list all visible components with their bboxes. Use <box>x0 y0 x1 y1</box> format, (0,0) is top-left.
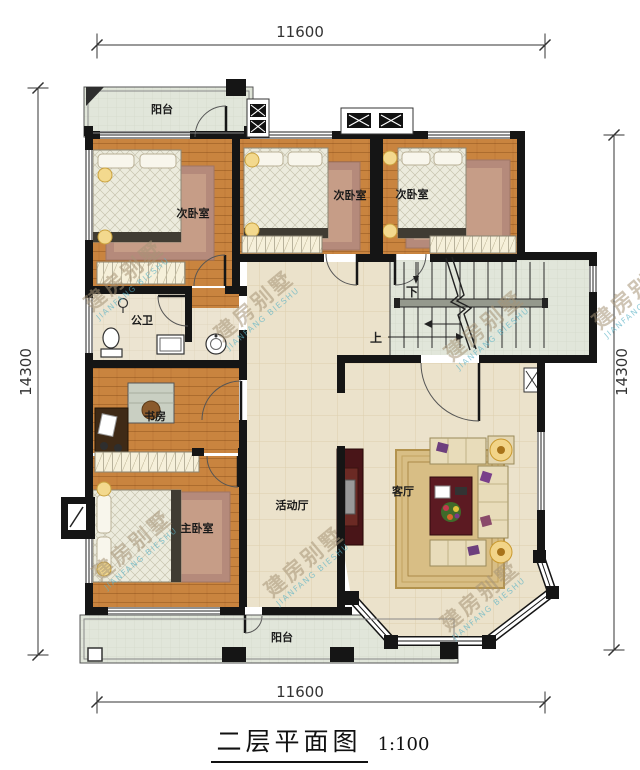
wall <box>239 286 247 296</box>
nightstand-lamp-icon <box>98 230 112 244</box>
wall <box>239 456 247 607</box>
nightstand-lamp-icon <box>97 482 111 496</box>
wall <box>430 254 517 262</box>
nightstand-lamp-icon <box>98 168 112 182</box>
label-living-room: 客厅 <box>391 484 414 498</box>
balcony-post <box>330 647 354 662</box>
label-bedroom-middle: 次卧室 <box>334 188 367 202</box>
nightstand-lamp-icon <box>245 223 259 237</box>
wall <box>357 254 370 262</box>
drawing-title-block: 二层平面图1:100 <box>0 722 640 763</box>
dimension-left: 14300 <box>17 83 48 660</box>
wall <box>85 360 247 368</box>
dimension-left-value: 14300 <box>17 348 35 396</box>
balcony-corner-post <box>88 648 102 661</box>
drawing-scale: 1:100 <box>378 734 430 755</box>
window <box>428 131 510 139</box>
window <box>108 607 220 615</box>
balcony-post <box>84 126 93 136</box>
balcony-post <box>226 79 246 96</box>
window <box>589 266 597 292</box>
dimension-right-value: 14300 <box>613 348 631 396</box>
floorplan-drawing: 下 上 <box>0 0 640 770</box>
dimension-bottom-value: 11600 <box>276 683 324 701</box>
wall <box>383 254 395 262</box>
stair-up-label: 上 <box>370 330 382 345</box>
label-bedroom-left: 次卧室 <box>177 206 210 220</box>
bay-post <box>482 635 496 649</box>
wall <box>370 131 383 262</box>
wardrobe <box>95 452 199 472</box>
wall <box>240 254 324 262</box>
bed <box>93 150 181 242</box>
wall <box>238 448 247 456</box>
wall <box>185 294 192 342</box>
balcony-post <box>440 642 458 659</box>
ac-unit-icon <box>247 99 269 137</box>
drawing-title: 二层平面图 <box>211 722 368 763</box>
washer-icon <box>157 335 184 354</box>
bay-post <box>546 586 559 599</box>
window <box>100 131 190 139</box>
wall <box>192 448 204 456</box>
label-balcony-bottom: 阳台 <box>271 630 293 644</box>
speaker-icon <box>114 444 122 452</box>
wall <box>337 355 421 363</box>
label-bedroom-right: 次卧室 <box>396 187 429 201</box>
dimension-right: 14300 <box>604 130 631 655</box>
stair-down-label: 下 <box>406 285 418 299</box>
window <box>85 150 93 240</box>
balcony-post <box>222 647 246 662</box>
label-bathroom: 公卫 <box>131 314 153 327</box>
label-master-bedroom: 主卧室 <box>181 521 214 535</box>
closet <box>430 236 516 253</box>
coffee-table <box>430 477 472 535</box>
bay-post <box>345 591 359 605</box>
label-study: 书房 <box>144 409 166 423</box>
dimension-top: 11600 <box>92 23 550 58</box>
wall <box>337 446 345 607</box>
wall <box>239 368 247 380</box>
tv-icon <box>345 480 355 514</box>
window <box>537 432 545 510</box>
wall <box>262 607 352 615</box>
nightstand-lamp-icon <box>383 224 397 238</box>
bay-post <box>533 550 546 563</box>
speaker-icon <box>100 442 108 450</box>
dimension-top-value: 11600 <box>276 23 324 41</box>
label-activity-hall: 活动厅 <box>276 498 309 512</box>
wall <box>337 363 345 393</box>
hall-floor-upper <box>345 262 390 355</box>
chimney <box>61 497 95 539</box>
wall <box>232 131 240 294</box>
bay-post <box>384 635 398 649</box>
nightstand-lamp-icon <box>245 153 259 167</box>
wall <box>517 252 597 260</box>
label-balcony-top: 阳台 <box>151 102 173 116</box>
nightstand-lamp-icon <box>383 151 397 165</box>
closet <box>242 236 322 253</box>
wall <box>517 131 525 260</box>
dimension-bottom: 11600 <box>92 683 550 713</box>
floorplan-canvas: 下 上 <box>0 0 640 770</box>
window <box>85 535 93 583</box>
ac-ledge <box>341 108 413 134</box>
